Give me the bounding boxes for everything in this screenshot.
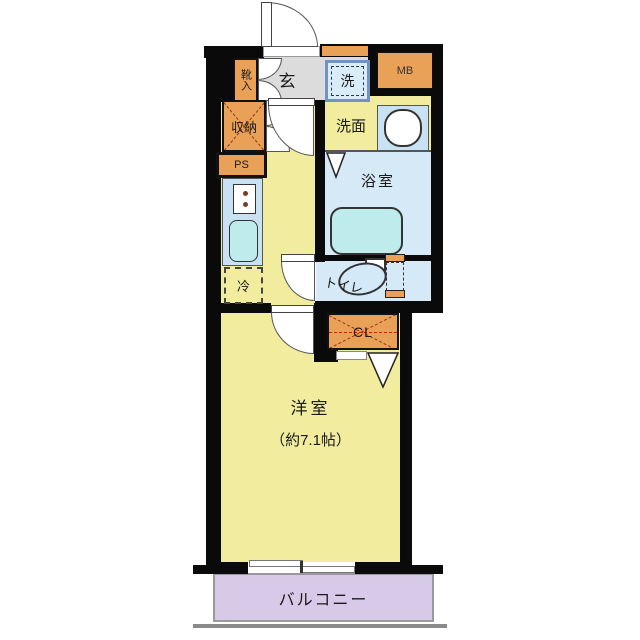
- closet-label: CL: [329, 315, 397, 348]
- storage-label: 収納: [224, 102, 264, 150]
- storage-cabinet: 収納: [222, 100, 266, 152]
- balcony-divider-left: [193, 565, 208, 574]
- room-door-leaf: [271, 305, 314, 313]
- burner-icon: [243, 202, 248, 207]
- main-room-name: 洋室: [221, 394, 400, 419]
- wall-room-bottom-right: [355, 562, 412, 574]
- entrance-sill: [263, 46, 320, 57]
- sliding-window-center-lock: [300, 561, 303, 573]
- sliding-window-pane-right: [301, 566, 355, 573]
- balcony-railing: [193, 624, 447, 628]
- shoe-cabinet: 靴入: [233, 58, 258, 102]
- kitchen-sink: [229, 220, 258, 262]
- closet-folding-door-icon: [367, 352, 399, 389]
- toilet-shelf-bottom: [385, 290, 405, 298]
- wall-duct-strip: [322, 46, 368, 56]
- floor-plan: バルコニー 玄 靴入 収納 P: [0, 0, 640, 640]
- wall-hall-room: [206, 303, 271, 313]
- washroom-label: 洗面: [326, 113, 376, 137]
- toilet-shelf-top: [385, 254, 405, 262]
- bathroom-label: 浴室: [325, 168, 431, 192]
- wall-closet-bottom: [314, 350, 338, 362]
- burner-icon: [243, 191, 248, 196]
- toilet-door-leaf: [281, 254, 315, 262]
- wall-left-entry-mass: [206, 46, 233, 102]
- entrance-door-leaf: [261, 2, 272, 47]
- meter-box: MB: [377, 52, 433, 89]
- wall-right-lower: [400, 308, 412, 574]
- main-room-size: （約7.1帖）: [221, 429, 400, 450]
- wall-room-bottom-left: [206, 562, 248, 574]
- closet: CL: [327, 313, 399, 350]
- wall-hall-washroom: [315, 100, 325, 262]
- refrigerator-space: 冷: [224, 267, 263, 304]
- balcony-divider-right: [412, 565, 443, 574]
- pipe-space: PS: [216, 152, 267, 178]
- entrance-door-swing: [266, 2, 318, 47]
- stove: [233, 184, 256, 214]
- washing-machine-label: 洗: [328, 63, 367, 99]
- bathtub: [330, 207, 403, 255]
- shoe-cabinet-label: 靴入: [235, 60, 256, 100]
- vanity-sink-bowl: [384, 109, 422, 147]
- balcony-label: バルコニー: [213, 586, 434, 610]
- closet-threshold: [336, 351, 367, 360]
- main-room-label: 洋室 （約7.1帖）: [221, 394, 400, 450]
- wall-toilet-bottom: [315, 301, 443, 313]
- toilet-shelf-dashed: [386, 262, 404, 291]
- sliding-window-pane-left: [249, 560, 303, 567]
- wall-mb-bottom: [368, 88, 443, 96]
- genkan-door-leaf: [268, 98, 315, 106]
- washing-machine: 洗: [325, 60, 370, 102]
